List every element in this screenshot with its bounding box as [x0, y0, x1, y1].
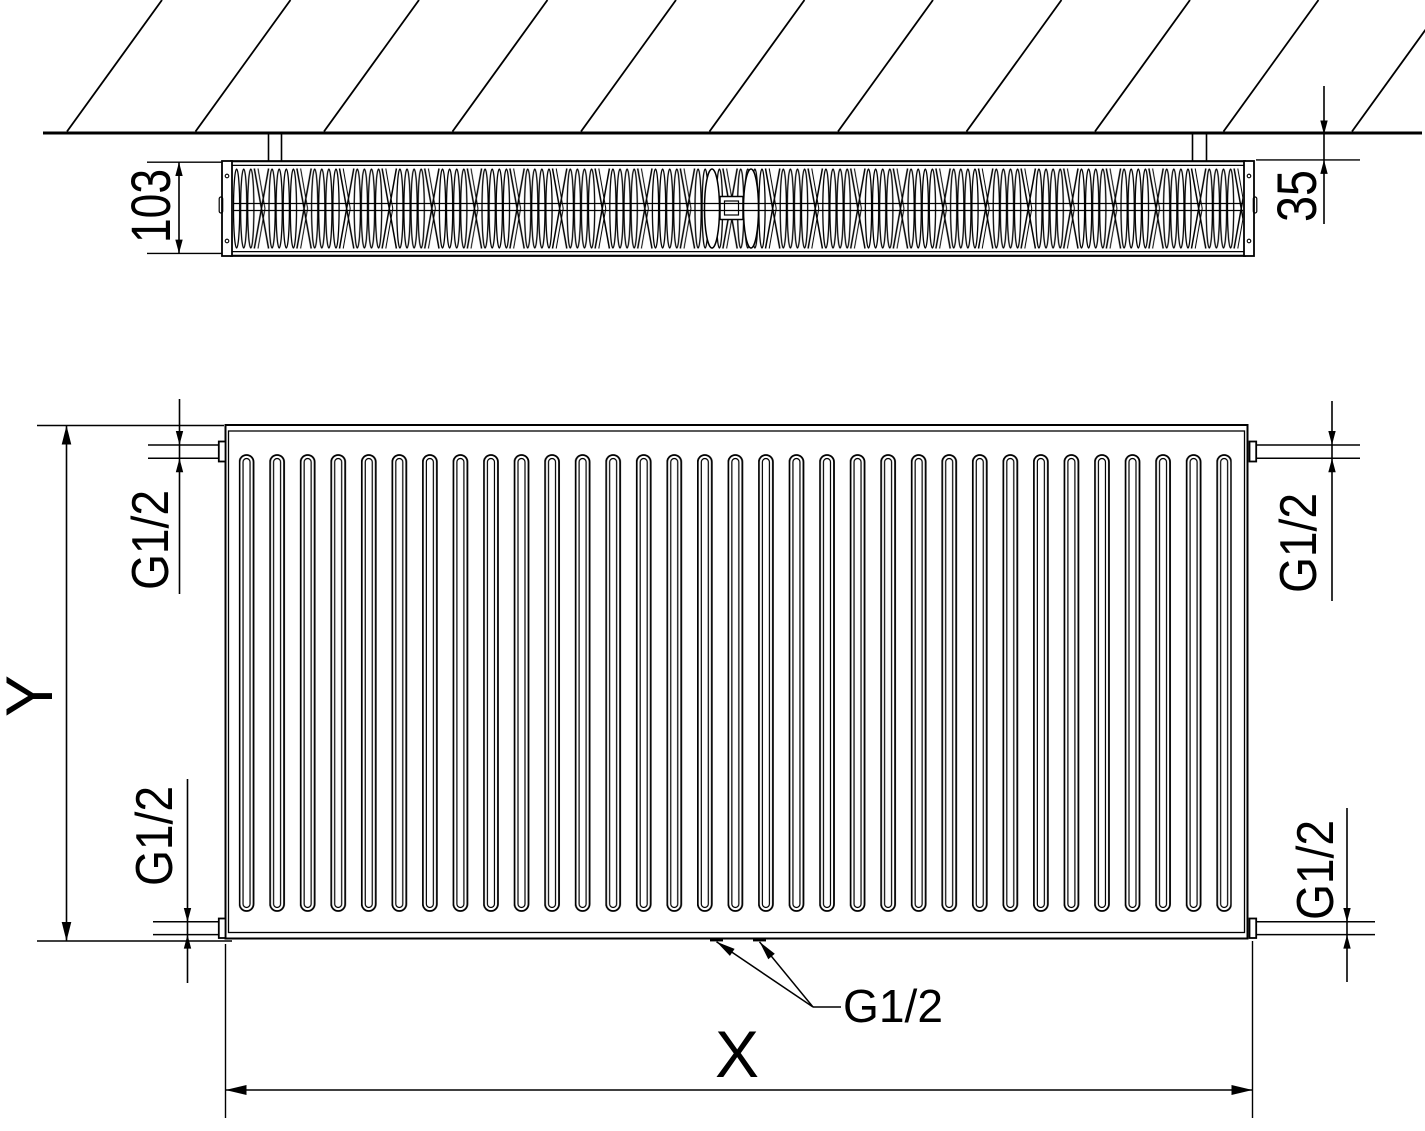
depth-dimension-label: 103 — [119, 169, 182, 243]
bottom-connection-left — [710, 938, 723, 942]
dimension-conn-bottom-right: G1/2 — [1287, 808, 1351, 982]
end-cap-right — [1244, 161, 1254, 256]
arrowhead — [226, 1085, 247, 1095]
wall-distance-dimension-label: 35 — [1265, 170, 1328, 222]
mounting-bracket-left — [269, 134, 282, 161]
mounting-bracket-right — [1193, 134, 1207, 161]
connection-stub-bottom-left — [153, 919, 226, 939]
end-cap-left — [222, 161, 232, 256]
connection-stub-top-right — [1250, 442, 1361, 462]
width-dimension-label: X — [715, 1017, 759, 1091]
top-view: 103 35 — [43, 0, 1425, 256]
connection-stub-top-left — [148, 442, 226, 462]
arrowhead — [1328, 458, 1335, 472]
radiator-technical-drawing: 103 35 — [0, 0, 1425, 1131]
radiator-top-view — [219, 161, 1257, 256]
height-dimension-label: Y — [0, 675, 66, 717]
connection-stub-bottom-right — [1250, 919, 1376, 939]
arrowhead — [176, 458, 183, 472]
arrowhead — [62, 426, 72, 445]
front-view: G1/2 G1/2 G1/2 G1/2 Y — [0, 399, 1375, 1118]
conn-bottom-left-label: G1/2 — [126, 786, 184, 886]
arrowhead — [717, 942, 735, 956]
arrowhead — [176, 431, 183, 445]
dimension-conn-bottom-left: G1/2 — [126, 779, 191, 983]
dimension-conn-top-left: G1/2 — [122, 399, 183, 594]
side-nub-right — [1253, 197, 1257, 213]
radiator-front-panel — [226, 425, 1248, 939]
conn-bottom-right-label: G1/2 — [1287, 820, 1345, 920]
bottom-connection-right — [753, 938, 766, 942]
side-nub-left — [219, 197, 223, 213]
dimension-wall-distance-35: 35 — [1256, 86, 1360, 224]
dimension-depth-103: 103 — [119, 162, 222, 253]
dimension-height-y: Y — [0, 426, 232, 942]
arrowhead — [1328, 431, 1335, 445]
dimension-width-x: X — [226, 941, 1253, 1118]
conn-bottom-center-label: G1/2 — [843, 980, 943, 1032]
conn-top-right-label: G1/2 — [1270, 493, 1328, 593]
arrowhead — [1232, 1085, 1253, 1095]
dimension-conn-top-right: G1/2 — [1270, 401, 1336, 601]
arrowhead — [184, 908, 191, 922]
arrowhead — [1343, 935, 1350, 949]
wall-hatching — [67, 0, 1425, 132]
channel-pattern — [239, 454, 1232, 916]
conn-top-left-label: G1/2 — [122, 490, 180, 590]
arrowhead — [62, 922, 72, 941]
